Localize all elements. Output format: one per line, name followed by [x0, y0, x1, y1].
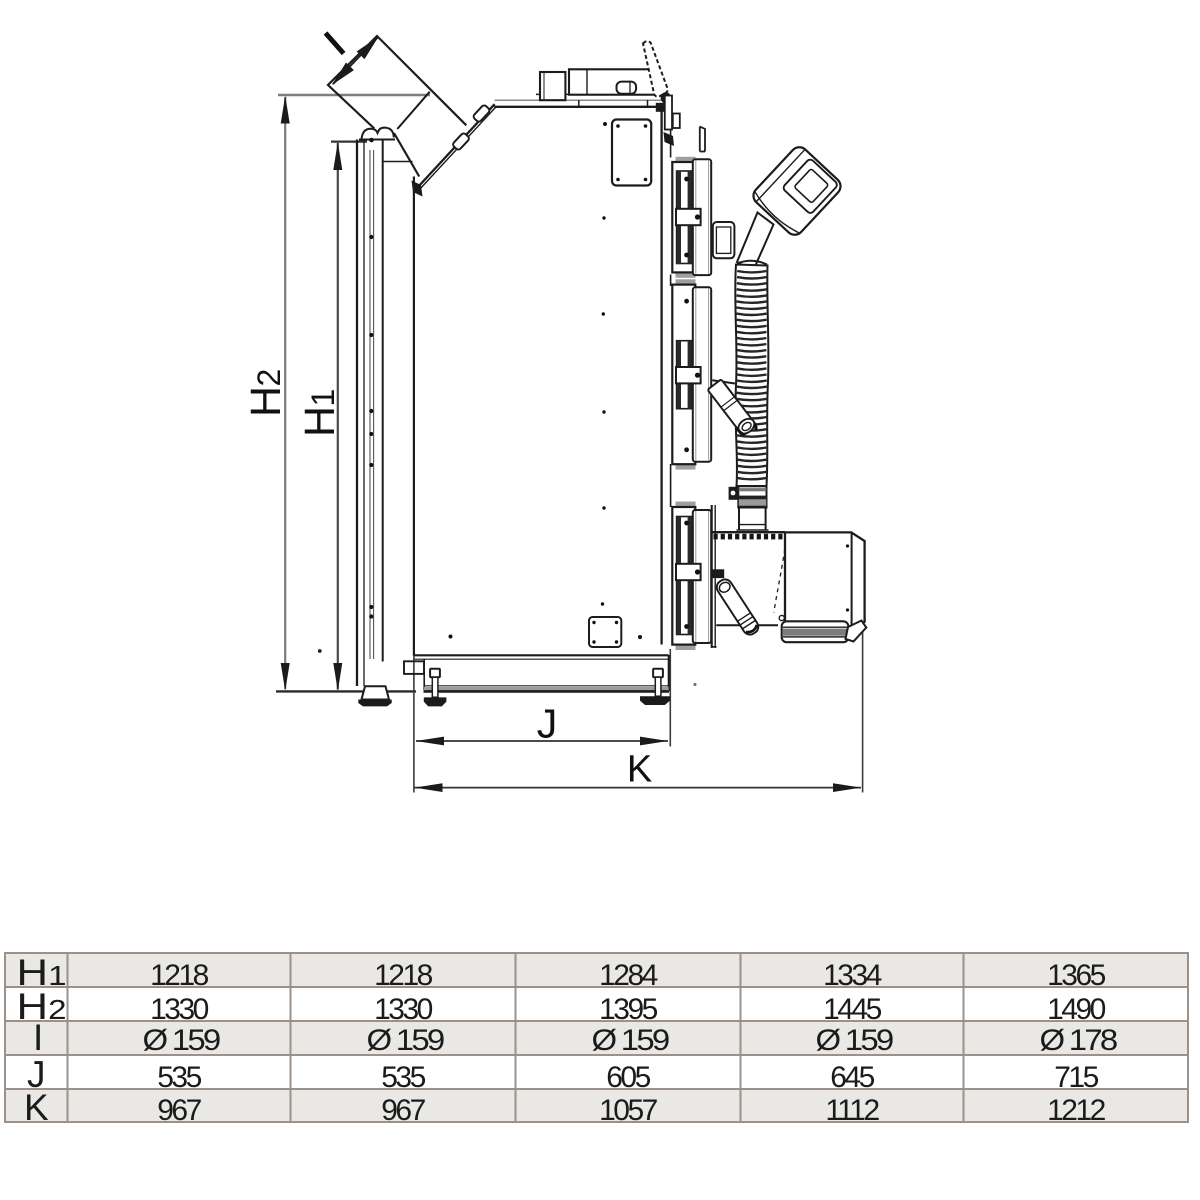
svg-text:J: J	[537, 701, 558, 747]
svg-text:1284: 1284	[599, 959, 658, 992]
svg-text:1365: 1365	[1047, 959, 1106, 992]
svg-text:1334: 1334	[823, 959, 882, 992]
svg-text:1490: 1490	[1047, 993, 1106, 1026]
svg-text:967: 967	[157, 1094, 201, 1127]
svg-text:1212: 1212	[1047, 1094, 1106, 1127]
svg-text:Ø 159: Ø 159	[367, 1024, 445, 1057]
svg-text:1057: 1057	[599, 1094, 658, 1127]
svg-text:1445: 1445	[823, 993, 882, 1026]
svg-text:715: 715	[1054, 1061, 1098, 1094]
svg-text:K: K	[627, 749, 652, 791]
svg-text:1218: 1218	[374, 959, 433, 992]
svg-text:1112: 1112	[825, 1094, 879, 1127]
svg-text:645: 645	[830, 1061, 874, 1094]
svg-text:I: I	[33, 1017, 43, 1058]
svg-text:967: 967	[381, 1094, 425, 1127]
svg-text:Ø 178: Ø 178	[1040, 1024, 1118, 1057]
svg-text:Ø 159: Ø 159	[816, 1024, 894, 1057]
svg-text:1330: 1330	[150, 993, 209, 1026]
svg-text:1218: 1218	[150, 959, 209, 992]
svg-text:1395: 1395	[599, 993, 658, 1026]
svg-text:H1: H1	[296, 389, 344, 437]
svg-text:H2: H2	[242, 369, 290, 417]
svg-text:Ø 159: Ø 159	[592, 1024, 670, 1057]
svg-text:1330: 1330	[374, 993, 433, 1026]
svg-text:535: 535	[157, 1061, 201, 1094]
svg-text:Ø 159: Ø 159	[143, 1024, 221, 1057]
svg-text:535: 535	[381, 1061, 425, 1094]
svg-text:605: 605	[606, 1061, 650, 1094]
svg-text:K: K	[24, 1087, 49, 1128]
